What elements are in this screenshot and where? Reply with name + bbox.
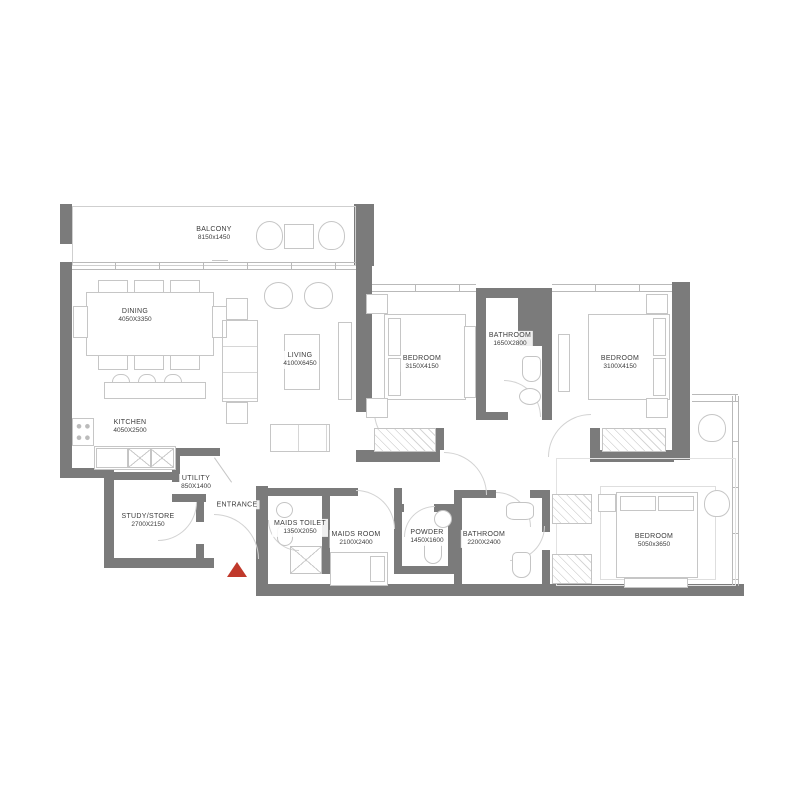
room-name: MAIDS TOILET: [274, 519, 326, 528]
wall: [356, 262, 372, 412]
fixture-sink: [519, 388, 541, 405]
room-label-dining: DINING 4050X3350: [116, 307, 153, 325]
room-label-bathroom2: BATHROOM 2200X2400: [461, 530, 507, 548]
wall: [394, 504, 404, 512]
furniture-dining-chair: [98, 355, 128, 370]
fixture-shower: [290, 546, 322, 574]
wall: [330, 488, 358, 496]
furniture-tv-unit: [558, 334, 570, 392]
room-name: DINING: [118, 307, 151, 316]
room-label-kitchen: KITCHEN 4050X2500: [111, 418, 148, 436]
room-name: BEDROOM: [635, 532, 673, 541]
furniture-sofa: [222, 320, 258, 402]
furniture-pillow: [658, 496, 694, 511]
room-name: BEDROOM: [601, 354, 639, 363]
wall: [542, 550, 550, 584]
fixture-toilet: [512, 552, 531, 578]
furniture-nightstand: [646, 398, 668, 418]
room-dims: 850X1400: [181, 483, 211, 492]
window-balcony-slider: [72, 262, 356, 270]
wall: [266, 488, 330, 496]
room-dims: 1650X2800: [489, 340, 531, 349]
room-dims: 3100X4150: [601, 363, 639, 372]
wall: [394, 488, 402, 574]
entrance-marker: [227, 562, 247, 577]
room-dims: 5050x3650: [635, 541, 673, 550]
room-dims: 4050X3350: [118, 316, 151, 325]
furniture-balcony-chair: [318, 221, 345, 250]
room-label-bedroom2: BEDROOM 3100X4150: [599, 354, 641, 372]
room-name: UTILITY: [181, 474, 211, 483]
furniture-armchair: [264, 282, 293, 309]
room-dims: 2100X2400: [332, 539, 381, 548]
room-dims: 1350X2050: [274, 528, 326, 537]
fixture-sink: [434, 510, 452, 528]
furniture-side-table: [226, 402, 248, 424]
room-dims: 4050X2500: [113, 427, 146, 436]
fixture-hob: [72, 418, 94, 446]
room-label-maids-toilet: MAIDS TOILET 1350X2050: [272, 519, 328, 537]
floor-plan: BALCONY 8150x1450 DINING 4050X3350 LIVIN…: [0, 0, 800, 800]
wall: [196, 544, 204, 568]
door-arc-bedroom2: [548, 414, 591, 457]
furniture-armchair: [704, 490, 730, 517]
furniture-kitchen-island: [104, 382, 206, 399]
balcony-door-mark: [212, 260, 228, 261]
furniture-nightstand: [366, 294, 388, 314]
furniture-dining-chair: [134, 355, 164, 370]
furniture-pillow: [620, 496, 656, 511]
fixture-sink: [276, 502, 293, 518]
room-label-balcony: BALCONY 8150x1450: [194, 225, 234, 243]
room-name: KITCHEN: [113, 418, 146, 427]
furniture-pillow: [370, 556, 385, 582]
furniture-side-table: [226, 298, 248, 320]
room-dims: 3150X4150: [403, 363, 441, 372]
wall: [196, 494, 204, 522]
room-name: BATHROOM: [489, 331, 531, 340]
furniture-pillow: [653, 318, 666, 356]
furniture-wardrobe: [552, 554, 592, 584]
furniture-pillow: [653, 358, 666, 396]
room-dims: 2200X2400: [463, 539, 505, 548]
furniture-wardrobe: [552, 494, 592, 524]
room-name: BATHROOM: [463, 530, 505, 539]
furniture-bench: [624, 578, 688, 588]
room-name: ENTRANCE: [217, 500, 258, 509]
room-label-utility: UTILITY 850X1400: [179, 474, 213, 492]
furniture-pillow: [388, 358, 401, 396]
furniture-dining-chair: [73, 306, 88, 338]
door-arc-entrance: [214, 514, 259, 559]
furniture-nightstand: [598, 494, 616, 512]
furniture-dining-chair: [170, 355, 200, 370]
room-label-entrance: ENTRANCE: [215, 500, 260, 509]
furniture-sofa: [270, 424, 330, 452]
furniture-pillow: [388, 318, 401, 356]
room-label-powder: POWDER 1450X1600: [408, 528, 445, 546]
room-label-living: LIVING 4100X6450: [281, 351, 318, 369]
furniture-armchair: [698, 414, 726, 442]
fixture-appliance: [128, 448, 152, 468]
room-dims: 4100X6450: [283, 360, 316, 369]
furniture-tv-unit: [464, 326, 476, 398]
wall: [672, 282, 690, 460]
window-bedroom1: [372, 284, 476, 292]
wall: [590, 428, 600, 450]
wall: [104, 468, 114, 568]
furniture-nightstand: [646, 294, 668, 314]
room-name: STUDY/STORE: [122, 512, 175, 521]
room-name: BEDROOM: [403, 354, 441, 363]
furniture-wardrobe: [374, 428, 436, 452]
room-dims: 2700X2150: [122, 521, 175, 530]
room-label-study-store: STUDY/STORE 2700X2150: [120, 512, 177, 530]
wall: [172, 448, 220, 456]
furniture-tv-unit: [338, 322, 352, 400]
room-label-maids-room: MAIDS ROOM 2100X2400: [330, 530, 383, 548]
window-bedroom2: [552, 284, 672, 292]
room-name: MAIDS ROOM: [332, 530, 381, 539]
room-dims: 1450X1600: [410, 537, 443, 546]
door-leaf-utility: [214, 457, 232, 482]
furniture-balcony-table: [284, 224, 314, 249]
room-label-bedroom1: BEDROOM 3150X4150: [401, 354, 443, 372]
room-name: LIVING: [283, 351, 316, 360]
furniture-armchair: [304, 282, 333, 309]
wall: [104, 472, 180, 480]
fixture-appliance: [150, 448, 174, 468]
wall: [354, 204, 374, 266]
room-name: BALCONY: [196, 225, 232, 234]
furniture-wardrobe: [602, 428, 666, 452]
room-label-bathroom1: BATHROOM 1650X2800: [487, 331, 533, 349]
door-arc-bedroom1: [444, 452, 487, 495]
room-label-bedroom3: BEDROOM 5050x3650: [633, 532, 675, 550]
wall: [60, 262, 72, 474]
furniture-kitchen-cabinet: [96, 448, 128, 468]
fixture-sink: [506, 502, 534, 520]
wall: [60, 204, 72, 244]
room-name: POWDER: [410, 528, 443, 537]
fixture-toilet: [522, 356, 541, 382]
wall: [394, 566, 456, 574]
room-dims: 8150x1450: [196, 234, 232, 243]
furniture-balcony-chair: [256, 221, 283, 250]
furniture-nightstand: [366, 398, 388, 418]
door-arc-maids-room: [356, 490, 395, 529]
wall: [476, 288, 486, 420]
